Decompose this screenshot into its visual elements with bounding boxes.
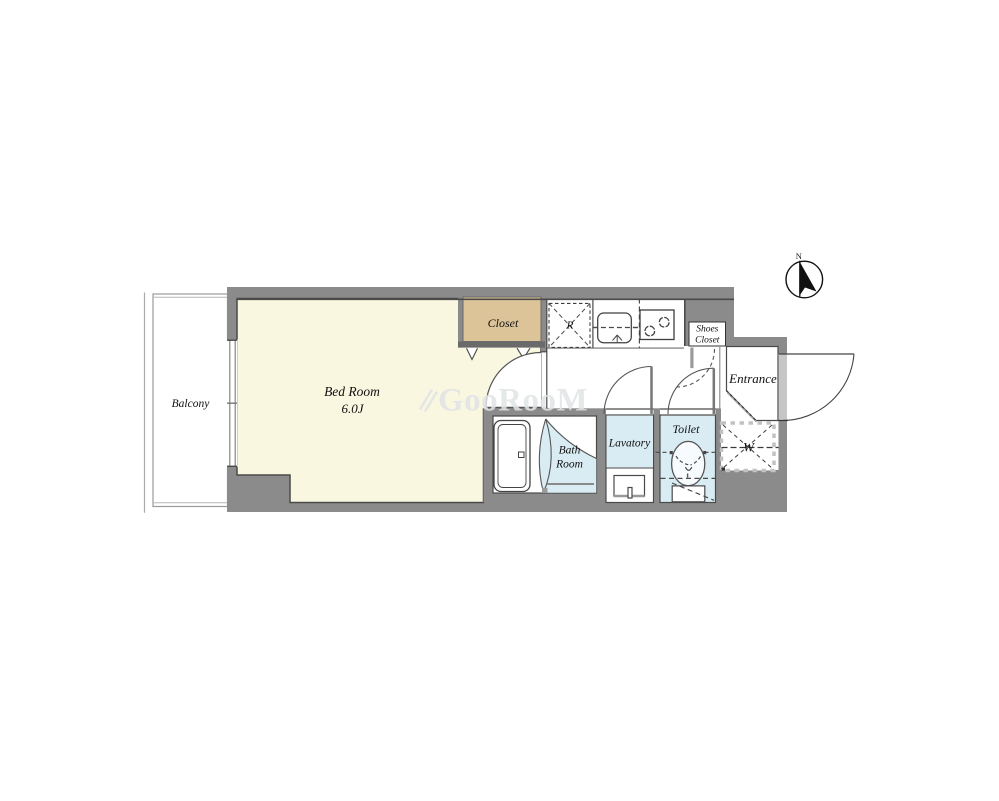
svg-text:6.0J: 6.0J	[341, 401, 364, 416]
svg-text:Bed Room: Bed Room	[324, 384, 380, 399]
svg-text:Lavatory: Lavatory	[608, 438, 651, 450]
svg-text:Closet: Closet	[488, 316, 519, 330]
svg-text:GooRooM: GooRooM	[438, 383, 588, 419]
svg-text:Entrance: Entrance	[728, 371, 777, 386]
svg-text:Shoes: Shoes	[696, 325, 718, 335]
svg-text:Balcony: Balcony	[172, 398, 211, 410]
svg-text:Toilet: Toilet	[673, 422, 701, 436]
svg-text:W: W	[743, 440, 755, 455]
svg-text:Room: Room	[555, 459, 583, 471]
svg-text:Closet: Closet	[695, 336, 720, 346]
svg-text:Bath: Bath	[559, 445, 581, 457]
svg-text:N: N	[796, 251, 802, 261]
svg-text:R: R	[566, 320, 574, 332]
